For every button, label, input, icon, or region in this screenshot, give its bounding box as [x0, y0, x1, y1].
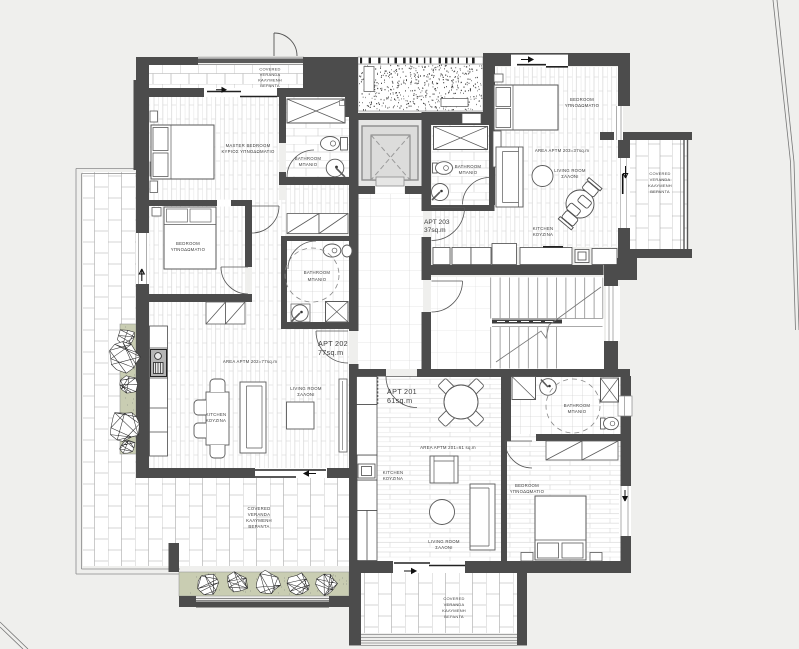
svg-text:61sq.m: 61sq.m: [387, 396, 412, 405]
svg-text:APT 203: APT 203: [424, 219, 450, 226]
svg-text:KITCHEN: KITCHEN: [383, 470, 404, 475]
svg-text:LIVING ROOM: LIVING ROOM: [290, 386, 322, 391]
svg-text:BATHROOM: BATHROOM: [304, 270, 331, 275]
svg-text:ΣΑΛΟΝΙ: ΣΑΛΟΝΙ: [435, 545, 452, 550]
svg-text:ΒΕΡΑΝΤΑ: ΒΕΡΑΝΤΑ: [248, 524, 269, 529]
svg-text:ΒΕΡΑΝΤΑ: ΒΕΡΑΝΤΑ: [260, 83, 280, 88]
svg-text:VERANDA: VERANDA: [444, 602, 465, 607]
svg-text:MASTER BEDROOM: MASTER BEDROOM: [226, 143, 271, 148]
svg-text:APT 202: APT 202: [318, 339, 348, 348]
svg-text:BEDROOM: BEDROOM: [570, 97, 594, 102]
svg-text:ΜΠΑΝΙΟ: ΜΠΑΝΙΟ: [308, 277, 327, 282]
svg-text:LIVING ROOM: LIVING ROOM: [428, 539, 460, 544]
svg-text:ΚΑΛΥΜΕΝΗ: ΚΑΛΥΜΕΝΗ: [648, 183, 672, 188]
svg-text:37sq.m: 37sq.m: [424, 227, 446, 234]
svg-text:ΜΠΑΝΙΟ: ΜΠΑΝΙΟ: [459, 170, 478, 175]
svg-text:BEDROOM: BEDROOM: [176, 241, 200, 246]
svg-text:ΣΑΛΟΝΙ: ΣΑΛΟΝΙ: [297, 392, 314, 397]
svg-text:ΣΑΛΟΝΙ: ΣΑΛΟΝΙ: [561, 174, 578, 179]
svg-text:VERANDA: VERANDA: [260, 72, 281, 77]
svg-text:VERANDA: VERANDA: [650, 177, 671, 182]
svg-text:ΒΕΡΑΝΤΑ: ΒΕΡΑΝΤΑ: [444, 614, 464, 619]
svg-text:ΚΟΥΖΙΝΑ: ΚΟΥΖΙΝΑ: [533, 232, 553, 237]
svg-text:VERANDA: VERANDA: [248, 512, 271, 517]
svg-text:ΥΠΝΟΔΩΜΑΤΙΟ: ΥΠΝΟΔΩΜΑΤΙΟ: [510, 489, 545, 494]
svg-text:AREA APTM 203=37sq.m: AREA APTM 203=37sq.m: [535, 148, 589, 153]
svg-text:BATHROOM: BATHROOM: [295, 156, 322, 161]
svg-text:77sq.m: 77sq.m: [318, 348, 343, 357]
svg-text:ΚΟΥΖΙΝΑ: ΚΟΥΖΙΝΑ: [206, 418, 226, 423]
svg-text:ΚΟΥΖΙΝΑ: ΚΟΥΖΙΝΑ: [383, 476, 403, 481]
svg-text:BEDROOM: BEDROOM: [515, 483, 539, 488]
svg-text:KΑΛΥΜΕΝΗ: KΑΛΥΜΕΝΗ: [246, 518, 272, 523]
svg-text:ΚΑΛΥΜΕΝΗ: ΚΑΛΥΜΕΝΗ: [258, 78, 282, 83]
svg-text:ΥΠΝΟΔΩΜΑΤΙΟ: ΥΠΝΟΔΩΜΑΤΙΟ: [565, 103, 600, 108]
svg-text:BATHROOM: BATHROOM: [455, 164, 482, 169]
svg-text:AREA APTM 201=61 sq.m: AREA APTM 201=61 sq.m: [420, 445, 476, 450]
svg-text:LIVING ROOM: LIVING ROOM: [554, 168, 586, 173]
svg-text:KITCHEN: KITCHEN: [206, 412, 227, 417]
svg-text:COVERED: COVERED: [443, 596, 464, 601]
svg-text:KITCHEN: KITCHEN: [533, 226, 554, 231]
svg-text:COVERED: COVERED: [649, 171, 670, 176]
svg-text:AREA APTM 202=77sq.m: AREA APTM 202=77sq.m: [223, 359, 277, 364]
svg-text:COVERED: COVERED: [248, 506, 271, 511]
svg-text:ΚΥΡΙΟΣ ΥΠΝΟΔΩΜΑΤΙΟ: ΚΥΡΙΟΣ ΥΠΝΟΔΩΜΑΤΙΟ: [221, 149, 275, 154]
svg-text:BATHROOM: BATHROOM: [564, 403, 591, 408]
svg-text:ΜΠΑΝΙΟ: ΜΠΑΝΙΟ: [299, 162, 318, 167]
svg-text:APT 201: APT 201: [387, 387, 417, 396]
svg-text:ΒΕΡΑΝΤΑ: ΒΕΡΑΝΤΑ: [650, 189, 670, 194]
svg-text:COVERED: COVERED: [259, 67, 280, 72]
svg-text:ΚΑΛΥΜΕΝΗ: ΚΑΛΥΜΕΝΗ: [442, 608, 466, 613]
svg-text:ΜΠΑΝΙΟ: ΜΠΑΝΙΟ: [568, 409, 587, 414]
svg-text:ΥΠΝΟΔΩΜΑΤΙΟ: ΥΠΝΟΔΩΜΑΤΙΟ: [171, 247, 206, 252]
